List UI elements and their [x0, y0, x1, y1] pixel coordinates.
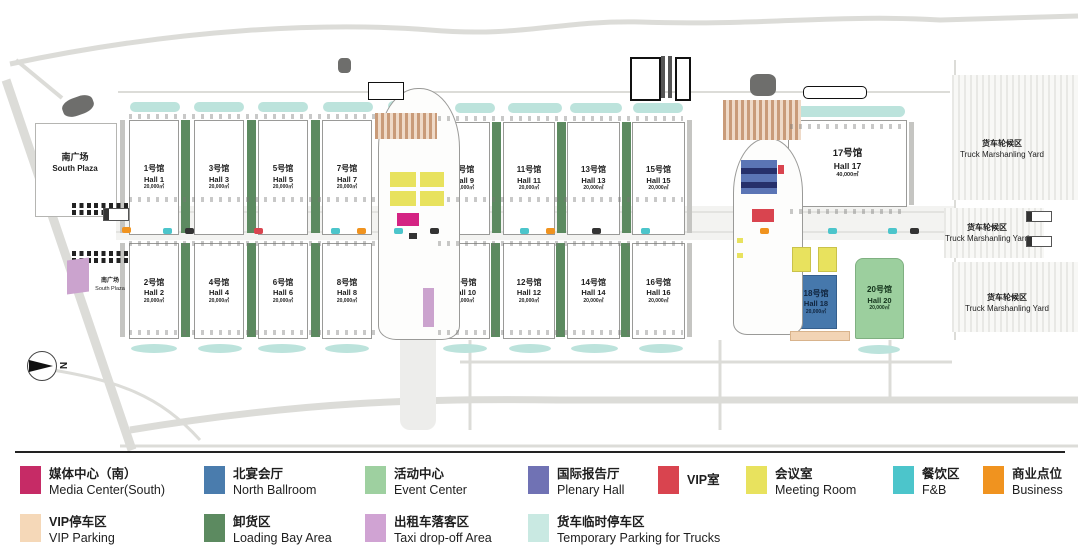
temp-truck-parking-strip	[788, 106, 905, 117]
vip-parking-strip	[790, 331, 850, 341]
taxi-dropoff-zone	[423, 288, 434, 327]
hall-name-en: Hall 7	[337, 175, 357, 185]
media-center-south-block	[397, 213, 419, 226]
roof-units	[129, 241, 377, 246]
roof-units	[438, 241, 683, 246]
tree-cluster	[338, 58, 351, 73]
legend-swatch	[20, 514, 41, 542]
loading-bay-strip	[621, 243, 630, 337]
north-ballroom-block	[741, 160, 777, 194]
loading-bay-strip	[556, 243, 565, 337]
legend-label-cn: 北宴会厅	[233, 466, 316, 482]
hall-area: 20,000㎡	[273, 184, 293, 191]
temp-truck-parking-strip	[443, 344, 487, 353]
hall-name-en: Hall 1	[144, 175, 164, 185]
fnb-dot	[394, 228, 403, 234]
hall-name-en: Hall 16	[646, 288, 670, 298]
legend-label-cn: 会议室	[775, 466, 856, 482]
legend-swatch	[204, 514, 225, 542]
legend-item-plenary-hall: 国际报告厅Plenary Hall	[528, 466, 624, 499]
loading-bay-strip	[181, 120, 190, 233]
temp-truck-parking-strip	[258, 102, 308, 112]
roof-units	[438, 197, 683, 202]
loading-bay-strip	[557, 122, 566, 233]
legend-swatch	[528, 466, 549, 494]
temp-truck-parking-strip	[508, 103, 562, 113]
legend-label-cn: VIP室	[687, 472, 720, 488]
loading-bay-strip	[491, 243, 500, 337]
south-plaza-label-cn: 南广场	[40, 152, 110, 164]
legend-label-cn: 商业点位	[1012, 466, 1063, 482]
facility-dot	[185, 228, 194, 234]
legend-item-fnb: 餐饮区F&B	[893, 466, 960, 499]
hall-1: 1号馆 Hall 1 20,000㎡	[129, 120, 179, 235]
meeting-room-block	[737, 253, 743, 258]
fnb-dot	[888, 228, 897, 234]
hall-11: 11号馆 Hall 11 20,000㎡	[503, 122, 555, 235]
legend-label-cn: 卸货区	[233, 514, 332, 530]
hall-8: 8号馆 Hall 8 20,000㎡	[322, 243, 372, 339]
hall-17: 17号馆 Hall 17 40,000㎡	[788, 120, 907, 207]
roof-units	[790, 209, 904, 214]
business-dot	[546, 228, 555, 234]
outbuilding	[675, 57, 691, 101]
facility-dot	[592, 228, 601, 234]
legend-swatch	[204, 466, 225, 494]
truck-yard-zone	[952, 75, 1078, 200]
hall-name-en: Hall 18	[804, 299, 828, 309]
hall-name-cn: 20号馆	[867, 285, 892, 295]
hall-area: 20,000㎡	[583, 298, 603, 305]
hall-6: 6号馆 Hall 6 20,000㎡	[258, 243, 308, 339]
south-core-pier	[400, 335, 436, 430]
roof-units	[129, 114, 377, 119]
loading-bay-strip	[247, 243, 256, 337]
hall-name-cn: 4号馆	[209, 278, 229, 288]
hall-3: 3号馆 Hall 3 20,000㎡	[194, 120, 244, 235]
hall-area: 20,000㎡	[583, 185, 603, 192]
legend-swatch	[365, 466, 386, 494]
legend-label-en: Temporary Parking for Trucks	[557, 530, 720, 546]
tree-cluster	[750, 74, 776, 96]
hall-name-cn: 6号馆	[273, 278, 293, 288]
legend-swatch	[528, 514, 549, 542]
hall-4: 4号馆 Hall 4 20,000㎡	[194, 243, 244, 339]
hall-area: 20,000㎡	[273, 298, 293, 305]
site-plan-page: 货车轮候区 Truck Marshanling Yard 货车轮候区 Truck…	[0, 0, 1080, 549]
hall-area: 20,000㎡	[337, 184, 357, 191]
hall-area: 20,000㎡	[337, 298, 357, 305]
business-dot	[357, 228, 366, 234]
south-plaza-label-en: South Plaza	[40, 164, 110, 174]
legend-label-cn: VIP停车区	[49, 514, 115, 530]
hall-name-en: Hall 15	[646, 176, 670, 186]
legend-swatch	[893, 466, 914, 494]
outbuilding	[630, 57, 661, 101]
loading-bay-strip	[181, 243, 190, 337]
fnb-dot	[163, 228, 172, 234]
south-plaza-small-label-cn: 南广场	[80, 278, 140, 286]
legend-item-north-ballroom: 北宴会厅North Ballroom	[204, 466, 316, 499]
truck-cab	[1027, 237, 1032, 246]
hall-name-cn: 13号馆	[581, 165, 606, 175]
loading-bay-strip	[311, 243, 320, 337]
outbuilding	[803, 86, 867, 99]
hall-name-en: Hall 6	[273, 288, 293, 298]
truck-icon	[1026, 211, 1052, 222]
legend-label-en: VIP Parking	[49, 530, 115, 546]
legend-label-cn: 活动中心	[394, 466, 467, 482]
temp-truck-parking-strip	[858, 345, 900, 354]
parking-structure-zone	[375, 113, 437, 139]
hall-name-en: Hall 5	[273, 175, 293, 185]
temp-truck-parking-strip	[258, 344, 306, 353]
hall-20: 20号馆 Hall 20 20,000㎡	[855, 258, 904, 339]
legend-item-media-center: 媒体中心（南）Media Center(South)	[20, 466, 165, 499]
legend-label-en: Taxi drop-off Area	[394, 530, 492, 546]
hall-name-en: Hall 13	[581, 176, 605, 186]
hall-name-cn: 2号馆	[144, 278, 164, 288]
temp-truck-parking-strip	[639, 344, 683, 353]
hall-name-en: Hall 12	[517, 288, 541, 298]
hall-name-cn: 14号馆	[581, 278, 606, 288]
legend-swatch	[983, 466, 1004, 494]
legend-label-en: Business	[1012, 482, 1063, 498]
outbuilding	[661, 56, 665, 98]
legend-item-vip-parking: VIP停车区VIP Parking	[20, 514, 115, 547]
legend-item-meeting-room: 会议室Meeting Room	[746, 466, 856, 499]
truck-yard-label-cn: 货车轮候区	[932, 293, 1080, 304]
roof-units	[438, 330, 683, 335]
service-strip	[909, 122, 914, 205]
hall-area: 20,000㎡	[519, 298, 539, 305]
meeting-room-block	[420, 191, 444, 206]
legend-item-vip-room: VIP室	[658, 466, 720, 494]
hall-area: 20,000㎡	[209, 184, 229, 191]
hall-5: 5号馆 Hall 5 20,000㎡	[258, 120, 308, 235]
hall-name-cn: 11号馆	[517, 165, 541, 175]
legend: 媒体中心（南）Media Center(South) 北宴会厅North Bal…	[0, 453, 1080, 549]
hall-16: 16号馆 Hall 16 20,000㎡	[632, 243, 685, 339]
tree-row	[72, 251, 130, 256]
legend-label-cn: 出租车落客区	[394, 514, 492, 530]
legend-label-cn: 国际报告厅	[557, 466, 624, 482]
hall-13: 13号馆 Hall 13 20,000㎡	[567, 122, 620, 235]
hall-name-en: Hall 20	[867, 296, 891, 306]
south-plaza-small-label: 南广场 South Plaza	[80, 278, 140, 293]
legend-item-temp-truck-parking: 货车临时停车区Temporary Parking for Trucks	[528, 514, 720, 547]
hall-name-cn: 5号馆	[273, 164, 293, 174]
hall-name-cn: 18号馆	[804, 289, 829, 299]
loading-bay-strip	[492, 122, 501, 233]
facility-dot	[910, 228, 919, 234]
service-strip	[687, 243, 692, 337]
hall-name-en: Hall 8	[337, 288, 357, 298]
compass-needle-icon	[29, 360, 53, 372]
meeting-room-block	[792, 247, 811, 272]
truck-yard-label-cn: 货车轮候区	[912, 223, 1062, 234]
hall-area: 20,000㎡	[144, 298, 164, 305]
hall-name-cn: 17号馆	[833, 148, 863, 160]
hall-name-cn: 7号馆	[337, 164, 357, 174]
temp-truck-parking-strip	[130, 102, 180, 112]
roof-units	[790, 124, 904, 129]
legend-label-en: Event Center	[394, 482, 467, 498]
hall-area: 20,000㎡	[648, 185, 668, 192]
truck-yard-label-en: Truck Marshanling Yard	[927, 150, 1077, 161]
roof-units	[129, 330, 377, 335]
hall-name-cn: 3号馆	[209, 164, 229, 174]
hall-name-cn: 8号馆	[337, 278, 357, 288]
meeting-room-block	[818, 247, 837, 272]
facility-dot	[430, 228, 439, 234]
south-plaza-label: 南广场 South Plaza	[40, 152, 110, 174]
truck-yard-label-en: Truck Marshanling Yard	[932, 304, 1080, 315]
hall-name-en: Hall 3	[209, 175, 229, 185]
meeting-room-block	[390, 191, 416, 206]
hall-area: 20,000㎡	[869, 305, 889, 312]
hall-12: 12号馆 Hall 12 20,000㎡	[503, 243, 555, 339]
truck-cab	[1027, 212, 1032, 221]
vip-room-block	[778, 165, 784, 174]
hall-15: 15号馆 Hall 15 20,000㎡	[632, 122, 685, 235]
fnb-dot	[641, 228, 650, 234]
truck-yard-label: 货车轮候区 Truck Marshanling Yard	[932, 293, 1080, 315]
north-compass: N	[27, 351, 57, 381]
outbuilding	[368, 82, 404, 100]
hall-name-cn: 1号馆	[144, 164, 164, 174]
temp-truck-parking-strip	[198, 344, 242, 353]
parking-structure-zone	[723, 100, 801, 140]
facility-block	[409, 233, 417, 239]
temp-truck-parking-strip	[194, 102, 244, 112]
legend-label-en: Loading Bay Area	[233, 530, 332, 546]
hall-name-en: Hall 11	[517, 176, 541, 186]
hall-area: 40,000㎡	[836, 172, 858, 179]
temp-truck-parking-strip	[571, 344, 618, 353]
fnb-dot	[520, 228, 529, 234]
outbuilding	[668, 56, 672, 98]
temp-truck-parking-strip	[455, 103, 495, 113]
loading-bay-strip	[247, 120, 256, 233]
hall-area: 20,000㎡	[648, 298, 668, 305]
hall-area: 20,000㎡	[209, 298, 229, 305]
south-plaza-small-label-en: South Plaza	[80, 286, 140, 293]
vip-room-dot	[254, 228, 263, 234]
meeting-room-block	[420, 172, 444, 187]
legend-label-en: Media Center(South)	[49, 482, 165, 498]
legend-label-en: Meeting Room	[775, 482, 856, 498]
north-ballroom-band	[741, 168, 777, 174]
north-ballroom-band	[741, 182, 777, 188]
loading-bay-strip	[311, 120, 320, 233]
truck-icon	[1026, 236, 1052, 247]
temp-truck-parking-strip	[633, 103, 683, 113]
hall-name-en: Hall 17	[834, 161, 861, 172]
hall-name-cn: 16号馆	[646, 278, 671, 288]
service-strip	[687, 120, 692, 233]
site-plan: 货车轮候区 Truck Marshanling Yard 货车轮候区 Truck…	[0, 0, 1080, 452]
legend-label-en: North Ballroom	[233, 482, 316, 498]
roof-units	[438, 116, 683, 121]
meeting-room-block	[737, 238, 743, 243]
temp-truck-parking-strip	[323, 102, 373, 112]
taxi-dropoff-zone	[67, 257, 89, 294]
business-dot	[760, 228, 769, 234]
legend-swatch	[746, 466, 767, 494]
legend-item-taxi-dropoff: 出租车落客区Taxi drop-off Area	[365, 514, 492, 547]
vip-room-block	[752, 209, 774, 222]
legend-label-cn: 媒体中心（南）	[49, 466, 165, 482]
fnb-dot	[331, 228, 340, 234]
hall-name-en: Hall 2	[144, 288, 164, 298]
legend-label-cn: 货车临时停车区	[557, 514, 720, 530]
hall-name-cn: 12号馆	[517, 278, 542, 288]
hall-area: 20,000㎡	[144, 184, 164, 191]
legend-label-cn: 餐饮区	[922, 466, 960, 482]
legend-label-en: F&B	[922, 482, 960, 498]
legend-swatch	[658, 466, 679, 494]
legend-swatch	[20, 466, 41, 494]
temp-truck-parking-strip	[325, 344, 369, 353]
temp-truck-parking-strip	[570, 103, 622, 113]
legend-item-business: 商业点位Business	[983, 466, 1063, 499]
business-dot	[122, 227, 131, 233]
truck-cab	[104, 209, 109, 220]
legend-item-event-center: 活动中心Event Center	[365, 466, 467, 499]
legend-swatch	[365, 514, 386, 542]
hall-name-cn: 15号馆	[646, 165, 671, 175]
hall-name-en: Hall 4	[209, 288, 229, 298]
hall-name-en: Hall 14	[581, 288, 605, 298]
compass-north-label: N	[57, 362, 68, 369]
hall-area: 20,000㎡	[519, 185, 539, 192]
legend-item-loading-bay: 卸货区Loading Bay Area	[204, 514, 332, 547]
truck-yard-label: 货车轮候区 Truck Marshanling Yard	[927, 139, 1077, 161]
legend-label-en: Plenary Hall	[557, 482, 624, 498]
loading-bay-strip	[622, 122, 631, 233]
hall-7: 7号馆 Hall 7 20,000㎡	[322, 120, 372, 235]
hall-area: 20,000㎡	[806, 309, 826, 316]
temp-truck-parking-strip	[131, 344, 177, 353]
temp-truck-parking-strip	[509, 344, 551, 353]
truck-yard-label-cn: 货车轮候区	[927, 139, 1077, 150]
roof-units	[129, 197, 377, 202]
fnb-dot	[828, 228, 837, 234]
meeting-room-block	[390, 172, 416, 187]
truck-icon	[103, 208, 129, 221]
hall-14: 14号馆 Hall 14 20,000㎡	[567, 243, 620, 339]
